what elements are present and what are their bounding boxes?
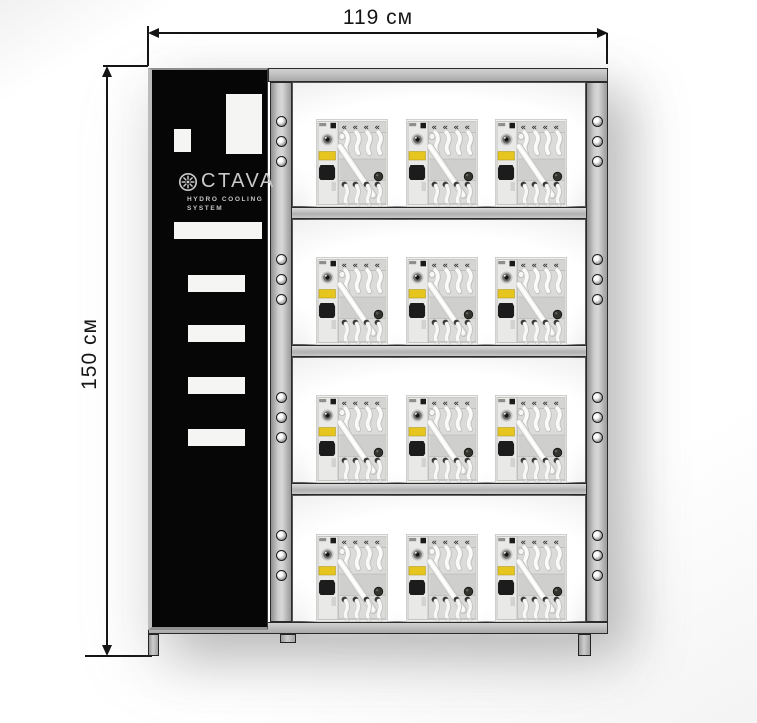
rack-frame: CTAVA HYDRO COOLING SYSTEM — [148, 68, 608, 634]
panel-cutout — [226, 94, 262, 154]
dimension-width-line — [158, 32, 598, 34]
dimension-height-line — [106, 76, 108, 646]
post-hole — [276, 254, 287, 265]
post-hole — [592, 116, 603, 127]
post-hole — [592, 274, 603, 285]
extension-line-top-right — [606, 33, 608, 64]
brand-text: CTAVA — [201, 170, 276, 193]
panel-cutout — [174, 222, 262, 239]
panel-slot — [188, 325, 245, 342]
post-hole — [276, 156, 287, 167]
dimension-height-label: 150 см — [78, 314, 102, 394]
rack-top-bar — [268, 68, 608, 82]
post-hole — [276, 136, 287, 147]
post-hole — [592, 392, 603, 403]
post-hole — [592, 412, 603, 423]
post-hole — [276, 116, 287, 127]
post-hole — [276, 550, 287, 561]
post-hole — [276, 530, 287, 541]
post-hole — [276, 274, 287, 285]
diagram-scene: 119 см 150 см — [0, 0, 757, 723]
post-hole — [592, 550, 603, 561]
post-hole — [592, 570, 603, 581]
extension-line-top-left — [147, 26, 149, 66]
post-hole — [592, 136, 603, 147]
brand-subtitle-line1: HYDRO COOLING — [187, 196, 263, 203]
post-hole — [592, 254, 603, 265]
rack-leg-right — [578, 634, 591, 656]
extension-line-left-bottom — [85, 655, 152, 657]
extension-line-left-top — [103, 65, 148, 67]
post-hole — [592, 530, 603, 541]
rack-leg-left — [148, 634, 159, 656]
panel-slot — [188, 429, 245, 446]
panel-cutout — [174, 129, 191, 152]
brand-subtitle-line2: SYSTEM — [187, 205, 223, 212]
panel-slot — [188, 275, 245, 292]
brand-panel: CTAVA HYDRO COOLING SYSTEM — [148, 68, 268, 630]
dimension-width-label: 119 см — [148, 6, 608, 30]
post-hole — [592, 294, 603, 305]
post-hole — [592, 156, 603, 167]
post-hole — [276, 392, 287, 403]
panel-slot — [188, 377, 245, 394]
post-hole — [276, 570, 287, 581]
brand-logo: CTAVA — [178, 170, 276, 193]
post-hole — [276, 412, 287, 423]
impeller-gear-icon — [178, 172, 198, 192]
rack-leg-middle — [280, 634, 296, 643]
post-hole — [276, 432, 287, 443]
post-hole — [592, 432, 603, 443]
post-hole — [276, 294, 287, 305]
